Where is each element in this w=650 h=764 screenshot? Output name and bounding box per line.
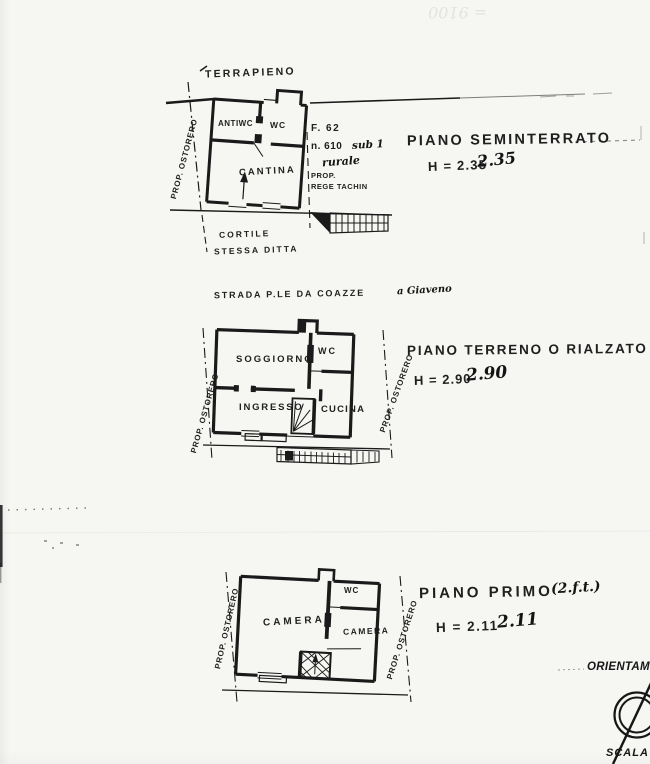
floor-plan-seminterrato-drawing <box>160 60 650 282</box>
scanned-floorplan-sheet: = 9100 <box>0 0 650 764</box>
terrain-label: TERRAPIENO <box>205 66 296 80</box>
plan1-height: H = 2.35 <box>428 158 488 173</box>
plan2-height: H = 2.90 <box>414 372 472 387</box>
property-boundary-label-left-p2: PROP. OSTORERO <box>190 372 221 454</box>
scale-label: SCALA 1 <box>606 748 650 759</box>
property-boundary-label-right-p2: PROP. OSTORERO <box>379 353 415 434</box>
plan3-title-handwritten: (2.f.t.) <box>551 580 601 597</box>
street-label-handwritten: a Giaveno <box>397 285 452 298</box>
floor-plan-terreno-drawing <box>185 300 425 490</box>
plan3-height-handwritten: 2.11 <box>496 611 539 632</box>
courtyard-label-line2: STESSA DITTA <box>214 245 299 256</box>
property-boundary-label-left-p1: PROP. OSTORERO <box>170 118 199 200</box>
room-label-camera-right: CAMERA <box>343 626 390 636</box>
scan-artifacts <box>0 0 650 764</box>
room-label-antiwc: ANTIWC <box>218 120 253 128</box>
property-boundary-label-right-p3: PROP. OSTORERO <box>386 599 419 680</box>
room-label-camera-left: CAMERA <box>263 615 325 628</box>
room-label-cucina: CUCINA <box>321 405 365 415</box>
courtyard-label-line1: CORTILE <box>219 229 271 239</box>
parcel-sub-handwritten: sub 1 <box>352 139 384 151</box>
floor-plan-primo-drawing <box>210 560 435 725</box>
room-label-wc-p3: WC <box>344 587 359 595</box>
plan2-title: PIANO TERRENO O RIALZATO <box>407 342 648 358</box>
plan1-title: PIANO SEMINTERRATO <box>407 132 611 149</box>
room-label-cantina: CANTINA <box>239 166 296 178</box>
parcel-note-rurale: rurale <box>322 155 361 169</box>
plan1-height-handwritten: 2.35 <box>476 150 516 170</box>
room-label-ingresso: INGRESSO <box>239 403 304 413</box>
bleed-through-handwriting: = 9100 <box>428 4 487 20</box>
orientation-label: ORIENTAM <box>587 662 650 674</box>
north-orientation-icon <box>597 676 650 764</box>
plan3-height: H = 2.11 <box>436 619 499 635</box>
room-label-wc-p1: WC <box>270 121 286 130</box>
plan2-height-handwritten: 2.90 <box>465 364 508 385</box>
room-label-soggiorno: SOGGIORNO <box>236 355 314 365</box>
parcel-sheet-label: F. 62 <box>311 124 340 134</box>
owner-prop-label: PROP. <box>311 172 336 180</box>
plan3-title: PIANO PRIMO <box>419 584 553 601</box>
owner-name-label: REGE TACHIN <box>311 183 368 191</box>
room-label-wc-p2: WC <box>318 347 337 356</box>
street-label: STRADA P.LE DA COAZZE <box>214 289 365 301</box>
property-boundary-label-left-p3: PROP. OSTORERO <box>214 587 240 670</box>
parcel-number-label: n. 610 <box>311 142 342 152</box>
